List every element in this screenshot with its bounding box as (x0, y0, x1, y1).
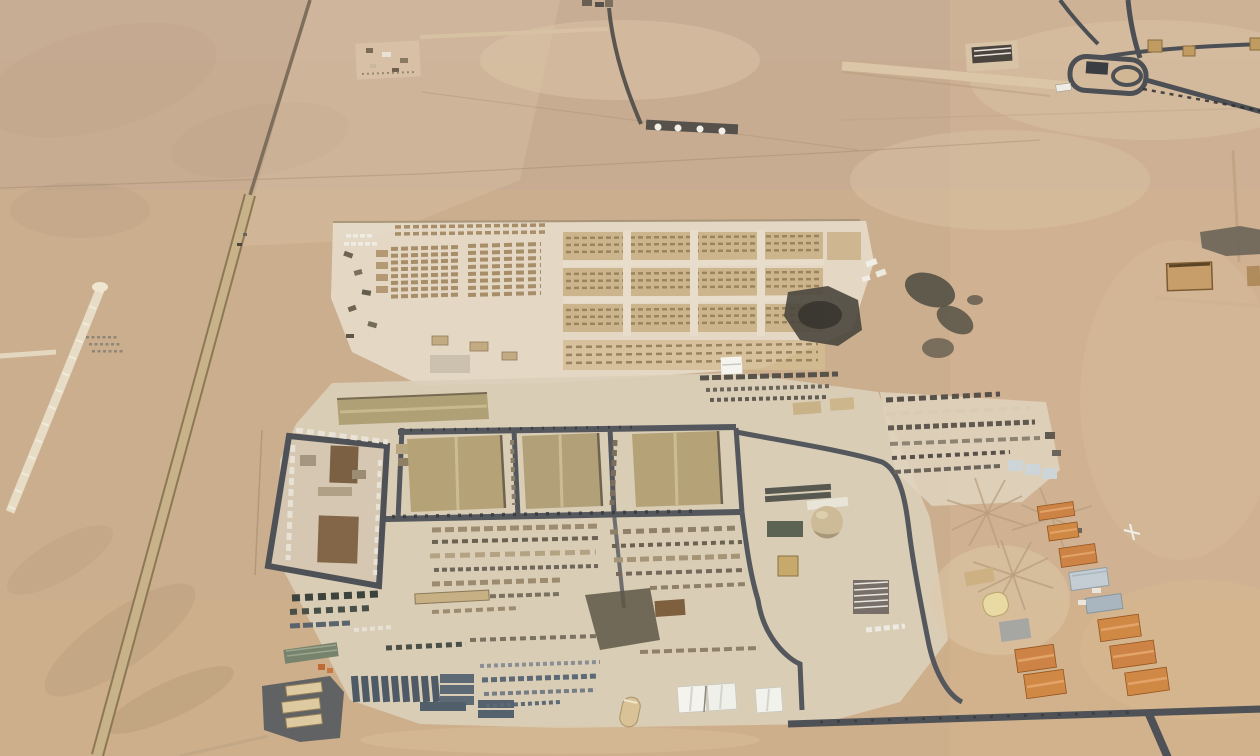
equipment-single (1045, 432, 1055, 439)
laydown-dot-grid (103, 336, 106, 339)
nw-facility-building (392, 68, 399, 72)
gate-canopy (1086, 61, 1109, 75)
compound-structure (318, 487, 352, 496)
nw-facility-building (400, 58, 408, 63)
white-tent-small (367, 234, 372, 238)
gray-pad (999, 618, 1031, 642)
container-long (420, 702, 466, 711)
barrack-building (830, 397, 855, 411)
road-vehicle (243, 233, 247, 236)
laydown-dot-grid (111, 343, 114, 346)
junk-pile-brown (654, 599, 685, 617)
scrub-patch-core (798, 301, 842, 329)
compound-structure (300, 455, 316, 466)
laydown-dot-grid (120, 350, 123, 353)
fuel-tank (697, 126, 704, 133)
white-tent-small (346, 234, 351, 238)
frame-structure (853, 580, 889, 614)
medium-tent (376, 286, 388, 293)
support-tent (432, 336, 448, 345)
hq-building (317, 515, 359, 563)
tent-row-top (395, 232, 545, 234)
laydown-dot-grid (89, 343, 92, 346)
tent-row-top (395, 225, 545, 227)
nw-facility-building (366, 48, 373, 53)
laydown-dot-grid (100, 343, 103, 346)
fuel-tank (675, 125, 682, 132)
laydown-dot-grid (117, 343, 120, 346)
container-long (440, 685, 474, 694)
gravel-path-horizontal (563, 262, 824, 264)
white-trailer (1092, 588, 1101, 593)
guard-building (1148, 40, 1162, 52)
medium-tent (376, 274, 388, 281)
hangar-ridge (675, 433, 677, 505)
support-tent (502, 352, 517, 360)
road-vehicle (237, 243, 242, 246)
radome-highlight (816, 511, 828, 519)
south-apron (360, 726, 760, 754)
laydown-dot-grid (95, 343, 98, 346)
walled-compound-shadow (1169, 264, 1210, 266)
hangar-ridge (456, 437, 458, 510)
laydown-dot-grid (92, 350, 95, 353)
laydown-dot-grid (92, 336, 95, 339)
white-tent-small (365, 242, 370, 246)
laydown-dot-grid (103, 350, 106, 353)
white-tent-small (344, 242, 349, 246)
white-tent-small (360, 234, 365, 238)
green-building (767, 521, 803, 537)
white-shelter (1008, 460, 1023, 471)
north-compound-structure (582, 0, 592, 6)
orange-crate (327, 668, 333, 673)
tent-grid-block-partial (827, 232, 861, 260)
fuel-tank (655, 124, 662, 131)
sand-mottle (10, 182, 150, 238)
white-shelter (1042, 468, 1057, 479)
white-shelter (1025, 464, 1040, 475)
tan-box-building (778, 556, 798, 576)
laydown-dot-grid (109, 350, 112, 353)
support-tent (470, 342, 488, 351)
white-tent-small (372, 242, 377, 246)
fuel-tank (719, 128, 726, 135)
gravel-path-horizontal (563, 298, 824, 300)
hangar-ridge (560, 435, 562, 507)
laydown-dot-grid (97, 336, 100, 339)
equipment-single (1052, 450, 1061, 456)
light-strip-end (92, 282, 108, 292)
equipment-item (346, 334, 354, 338)
north-compound-structure (605, 0, 613, 7)
laydown-dot-grid (114, 336, 117, 339)
north-compound-structure (595, 2, 604, 7)
scrub-patch (967, 295, 983, 305)
guard-building (1183, 46, 1195, 56)
guard-building (1250, 38, 1260, 50)
east-edge-building (1247, 266, 1260, 286)
support-pad (430, 355, 470, 373)
white-tent-small (358, 242, 363, 246)
container-long (478, 710, 514, 718)
medium-tent (376, 262, 388, 269)
white-gable-ridge (722, 364, 741, 365)
compound-structure (352, 470, 366, 479)
barrack-building (793, 401, 822, 415)
orange-crate (318, 664, 325, 670)
aerial-photo-canvas (0, 0, 1260, 756)
white-tent-small (353, 234, 358, 238)
laydown-dot-grid (106, 343, 109, 346)
sand-bright (850, 130, 1150, 230)
laydown-dot-grid (86, 336, 89, 339)
nw-facility-building (382, 52, 391, 57)
white-trailer (1078, 600, 1086, 605)
scrub-patch (922, 338, 954, 358)
laydown-dot-grid (98, 350, 101, 353)
gate-island (1113, 67, 1141, 85)
container-long (440, 674, 474, 683)
white-tent-small (351, 242, 356, 246)
laydown-dot-grid (108, 336, 111, 339)
aerial-photograph (0, 0, 1260, 756)
tent-lower-block (563, 340, 825, 370)
nw-facility-building (370, 64, 376, 68)
laydown-dot-grid (114, 350, 117, 353)
medium-tent (376, 250, 388, 257)
